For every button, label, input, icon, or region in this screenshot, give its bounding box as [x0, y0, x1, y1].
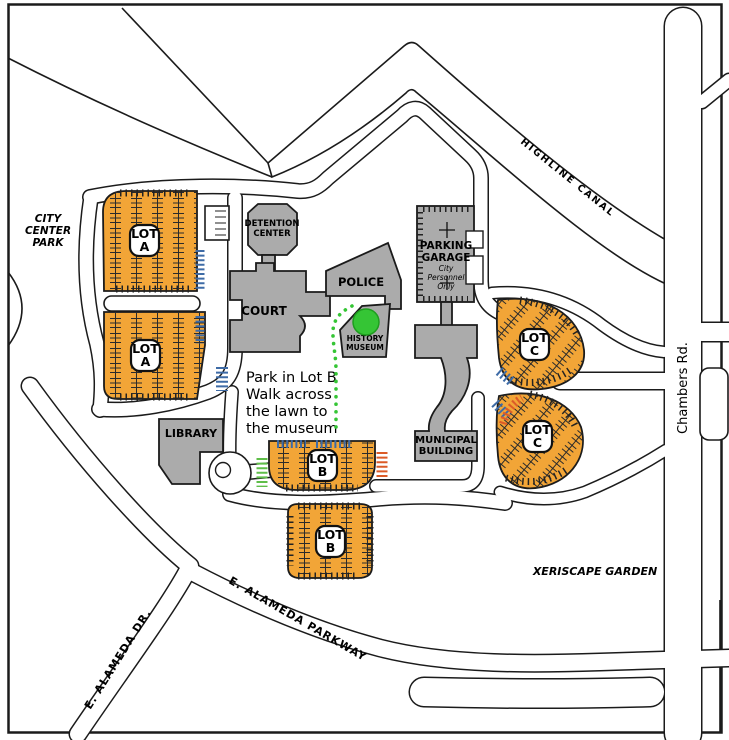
museum-marker	[353, 309, 379, 335]
svg-text:C: C	[533, 435, 542, 450]
court-label: COURT	[241, 304, 287, 318]
svg-text:B: B	[318, 464, 328, 479]
svg-text:CENTER: CENTER	[25, 225, 71, 237]
parking-garage-label: PARKING	[420, 240, 472, 252]
city-center-park-label: CITY	[35, 213, 63, 225]
svg-text:BUILDING: BUILDING	[419, 446, 473, 457]
svg-text:Only: Only	[437, 282, 455, 291]
shelter-structure	[205, 206, 229, 240]
garage-note: City	[439, 264, 454, 273]
svg-text:the lawn to: the lawn to	[246, 404, 328, 420]
library-label: LIBRARY	[165, 427, 218, 440]
roundabout	[209, 452, 251, 494]
garage-stem	[441, 302, 452, 326]
svg-text:A: A	[140, 239, 150, 254]
svg-text:CENTER: CENTER	[253, 229, 291, 239]
xeriscape-garden-label: XERISCAPE GARDEN	[532, 565, 657, 578]
chambers-driveway	[700, 368, 728, 440]
svg-text:Park in Lot B: Park in Lot B	[246, 370, 337, 386]
svg-text:B: B	[326, 540, 336, 555]
campus-map: LOT A LOT A LOT B LOT B LOT C LOT C DETE…	[0, 0, 729, 740]
svg-text:MUSEUM: MUSEUM	[346, 343, 384, 352]
svg-text:PARK: PARK	[32, 237, 64, 249]
svg-text:Personnel: Personnel	[428, 273, 466, 282]
svg-text:the museum: the museum	[246, 421, 338, 437]
svg-text:GARAGE: GARAGE	[422, 252, 471, 264]
municipal-label: MUNICIPAL	[415, 435, 477, 446]
detention-label: DETENTION	[245, 219, 300, 229]
svg-text:C: C	[530, 343, 539, 358]
svg-text:Walk across: Walk across	[246, 387, 332, 403]
chambers-rd-label: Chambers Rd.	[676, 342, 691, 434]
annotation-note: Park in Lot B Walk across the lawn to th…	[246, 370, 338, 437]
svg-text:A: A	[141, 354, 151, 369]
police-label: POLICE	[338, 275, 384, 289]
median-island	[104, 296, 200, 311]
